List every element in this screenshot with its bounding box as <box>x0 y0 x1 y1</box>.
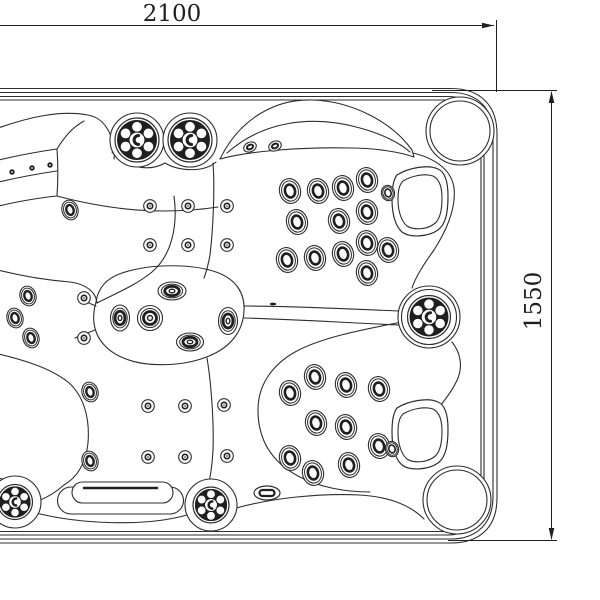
cluster-jets <box>274 165 401 487</box>
button-jet <box>182 239 195 252</box>
cluster-jet <box>274 245 300 274</box>
bottom-right-seat-bowl <box>258 322 402 492</box>
ring-jet <box>80 380 101 404</box>
cluster-jet <box>330 173 356 202</box>
star-jet-nozzle <box>207 511 216 520</box>
button-jet <box>179 451 192 464</box>
button-jet <box>221 200 234 213</box>
button-jet <box>142 451 155 464</box>
button-jet <box>144 239 157 252</box>
divider-bottom <box>207 358 213 489</box>
island-jet <box>158 282 186 300</box>
button-jet-dot <box>184 405 186 407</box>
button-jet <box>78 332 91 345</box>
vent-mark <box>270 303 276 306</box>
star-jet-nozzle <box>132 148 143 159</box>
ring-jet <box>21 326 42 350</box>
band-dot-center <box>31 167 33 169</box>
dim-width-label: 2100 <box>143 1 202 27</box>
waterfall-bar-inner <box>72 482 173 503</box>
star-jet-nozzle <box>11 508 19 516</box>
star-jet-nozzle <box>132 122 143 133</box>
cluster-jet <box>333 412 359 441</box>
star-jet <box>163 113 217 167</box>
star-jet-nozzle <box>185 148 196 159</box>
ring-jet <box>80 449 101 473</box>
cluster-jet <box>277 443 303 472</box>
drain-oval <box>254 303 280 500</box>
dim-height-label: 1550 <box>521 272 547 331</box>
button-jet-dot <box>187 244 189 246</box>
ring-jet <box>18 284 39 308</box>
island-jet-ring <box>158 282 186 300</box>
star-jet-nozzle <box>424 299 434 309</box>
star-jet-nozzle <box>185 122 196 133</box>
cluster-jet <box>303 408 329 437</box>
ring-jet <box>60 198 81 222</box>
island-jet <box>111 305 130 331</box>
dimension-width: 2100 <box>0 1 497 92</box>
cluster-jet <box>326 206 352 235</box>
button-jet-dot <box>149 244 151 246</box>
button-jet <box>179 400 192 413</box>
star-jet <box>110 113 164 167</box>
island-jet-ring <box>138 306 163 331</box>
left-seat-lower-boundary <box>0 352 88 485</box>
cluster-jet <box>302 243 328 272</box>
band-dot <box>29 165 34 170</box>
neck-band-bottom <box>0 171 57 184</box>
corner-filter <box>423 466 491 534</box>
band-dot <box>47 162 52 167</box>
button-jet-dot <box>147 456 149 458</box>
button-jet-dot <box>223 404 225 406</box>
cluster-jet <box>302 362 328 391</box>
ring-jet <box>5 306 26 330</box>
button-jet-dot <box>226 244 228 246</box>
grab-handle-outer <box>392 167 448 236</box>
star-jet-nozzle <box>11 487 19 495</box>
island-jet-ring <box>111 305 130 331</box>
button-jet <box>221 239 234 252</box>
cluster-jet <box>333 370 359 399</box>
button-jet-dot <box>83 297 85 299</box>
button-jet <box>182 200 195 213</box>
cluster-jet <box>277 378 303 407</box>
island-jets <box>111 282 238 351</box>
island-jet <box>219 308 238 335</box>
cluster-jet <box>305 176 331 205</box>
waterfall-bar <box>58 482 184 514</box>
grab-handle-outer <box>392 400 448 469</box>
cluster-jet <box>330 239 356 268</box>
dim-height-arrow-top <box>549 91 555 103</box>
hot-tub-technical-drawing: 2100 1550 <box>0 0 600 600</box>
drawing-canvas: 2100 1550 <box>0 0 600 600</box>
button-jet-dot <box>226 205 228 207</box>
star-jet-nozzle <box>207 490 216 499</box>
band-dot-center <box>49 164 51 166</box>
button-jet <box>142 400 155 413</box>
cluster-jet <box>277 176 303 205</box>
button-jet-dot <box>149 205 151 207</box>
cluster-jet <box>336 450 362 479</box>
cluster-jet <box>300 458 326 487</box>
neck-band-end <box>57 149 58 196</box>
cluster-jet <box>366 374 392 403</box>
star-jet <box>0 476 41 528</box>
right-wall-scurve-lower <box>441 342 460 405</box>
band-dot <box>9 169 14 174</box>
button-jet <box>78 292 91 305</box>
island-jet-ring <box>177 333 204 351</box>
island-jet <box>138 306 163 331</box>
divider-top <box>204 163 214 278</box>
button-jet <box>218 399 231 412</box>
dim-height-arrow-bottom <box>549 528 555 540</box>
cluster-jet <box>354 258 380 287</box>
button-jets <box>78 200 234 464</box>
island-jet-ring <box>219 308 238 335</box>
cluster-jet <box>284 207 310 236</box>
grab-handle <box>392 400 448 469</box>
neck-band-top <box>0 149 57 162</box>
star-jet <box>398 286 460 348</box>
corner-filter-outer <box>426 97 494 165</box>
button-jet <box>144 200 157 213</box>
dim-width-arrow <box>482 23 494 29</box>
cluster-jet <box>354 197 380 226</box>
divider-right-upper <box>244 306 399 311</box>
grab-handle <box>392 167 448 236</box>
button-jet <box>221 450 234 463</box>
button-jet-dot <box>83 337 85 339</box>
button-jet-dot <box>226 455 228 457</box>
hump-inner-curve <box>57 121 84 149</box>
button-jet-dot <box>187 205 189 207</box>
corner-filter-outer <box>423 466 491 534</box>
island-jet <box>177 333 204 351</box>
corner-filter <box>426 97 494 165</box>
divider-right-lower <box>244 318 400 325</box>
button-jet-dot <box>184 456 186 458</box>
neck-band-lower <box>0 196 57 208</box>
star-jet-nozzle <box>424 325 434 335</box>
cluster-jet <box>354 165 380 194</box>
cluster-jet <box>354 228 380 257</box>
cluster-jet <box>375 235 401 264</box>
star-jet <box>185 479 237 531</box>
band-dot-center <box>11 171 13 173</box>
drain-outer <box>254 486 280 500</box>
button-jet-dot <box>147 405 149 407</box>
